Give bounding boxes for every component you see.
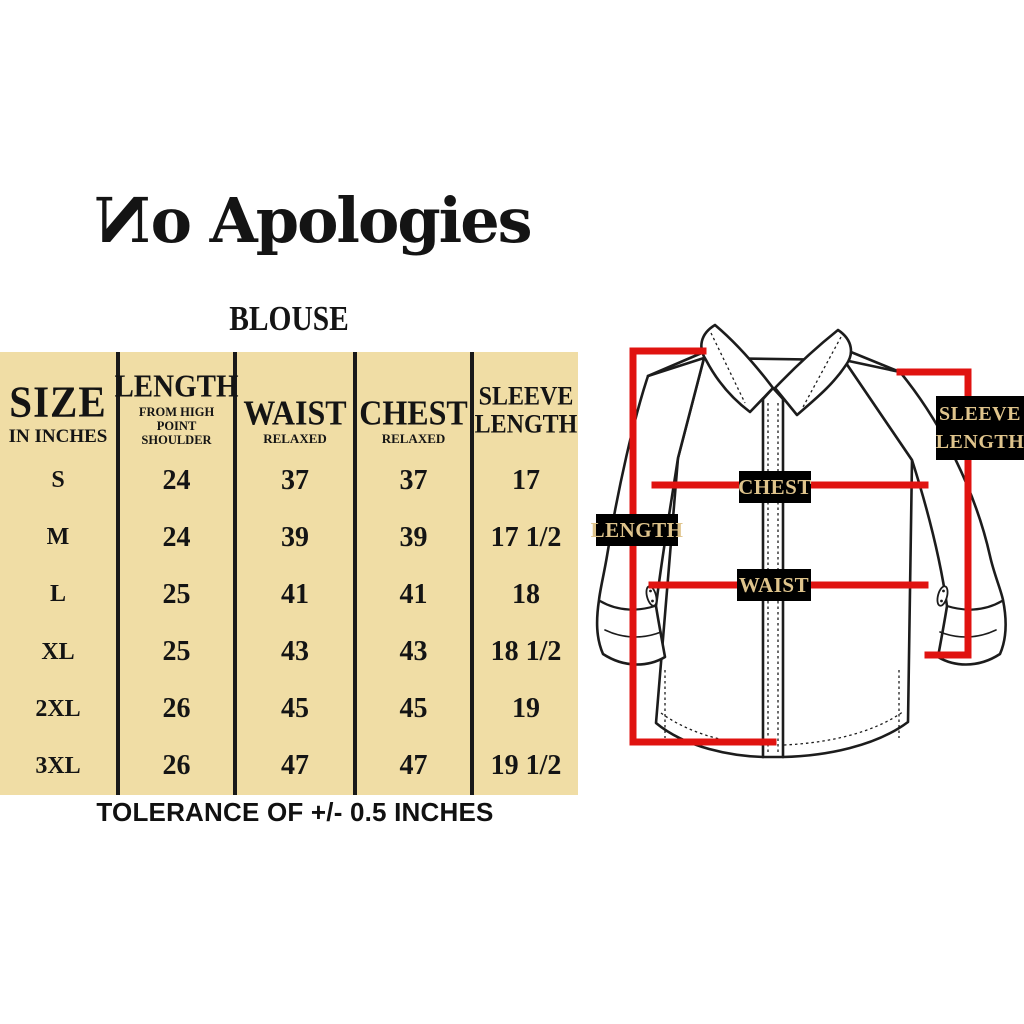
table-row-l-chest: 41 [353, 566, 470, 623]
table-row-s-chest: 37 [353, 452, 470, 509]
brand-logo-first-letter: N [96, 184, 151, 257]
column-title: LENGTH [114, 372, 238, 403]
tolerance-note: TOLERANCE OF +/- 0.5 INCHES [0, 797, 590, 828]
column-header-size: SIZE IN INCHES [0, 352, 116, 452]
column-title: SLEEVE LENGTH [475, 383, 578, 440]
table-row-s-length: 24 [116, 452, 233, 509]
table-row-l-length: 25 [116, 566, 233, 623]
column-header-sleeve-length: SLEEVE LENGTH [470, 352, 578, 452]
size-chart-page: No Apologies BLOUSE SIZE IN INCHES LENGT… [0, 0, 1024, 1024]
column-subtitle: RELAXED [263, 432, 327, 447]
brand-logo: No Apologies [96, 184, 531, 257]
table-row-m-sleeve: 17 1/2 [470, 509, 578, 566]
table-row-xl-sleeve: 18 1/2 [470, 624, 578, 681]
table-row-xl-waist: 43 [233, 624, 353, 681]
table-row-s-waist: 37 [233, 452, 353, 509]
waist-label: WAIST [737, 569, 811, 601]
column-subtitle: IN INCHES [9, 426, 108, 447]
table-row-l-size: L [0, 566, 116, 623]
length-label: LENGTH [596, 514, 678, 546]
table-row-s-sleeve: 17 [470, 452, 578, 509]
table-row-3xl-waist: 47 [233, 738, 353, 795]
table-row-xl-size: XL [0, 624, 116, 681]
sleeve-length-label: SLEEVE LENGTH [936, 396, 1024, 460]
table-row-m-size: M [0, 509, 116, 566]
column-header-waist: WAIST RELAXED [233, 352, 353, 452]
column-header-length: LENGTH FROM HIGH POINT SHOULDER [116, 352, 233, 452]
table-row-m-chest: 39 [353, 509, 470, 566]
table-row-2xl-chest: 45 [353, 681, 470, 738]
chest-label: CHEST [739, 471, 811, 503]
table-row-3xl-length: 26 [116, 738, 233, 795]
column-header-chest: CHEST RELAXED [353, 352, 470, 452]
table-row-m-length: 24 [116, 509, 233, 566]
table-row-l-waist: 41 [233, 566, 353, 623]
column-subtitle: FROM HIGH POINT SHOULDER [123, 405, 230, 447]
table-row-3xl-size: 3XL [0, 738, 116, 795]
table-row-s-size: S [0, 452, 116, 509]
table-row-2xl-waist: 45 [233, 681, 353, 738]
column-title: CHEST [359, 396, 467, 431]
column-subtitle: RELAXED [382, 432, 446, 447]
table-row-l-sleeve: 18 [470, 566, 578, 623]
table-row-2xl-sleeve: 19 [470, 681, 578, 738]
column-title: SIZE [9, 379, 106, 423]
table-row-m-waist: 39 [233, 509, 353, 566]
product-title: BLOUSE [14, 299, 563, 339]
blouse-measurement-diagram: CHEST WAIST LENGTH SLEEVE LENGTH [594, 308, 1024, 778]
size-chart-table: SIZE IN INCHES LENGTH FROM HIGH POINT SH… [0, 352, 578, 795]
brand-logo-rest: o Apologies [151, 184, 531, 257]
table-row-xl-length: 25 [116, 624, 233, 681]
column-title: WAIST [243, 396, 346, 431]
table-row-3xl-chest: 47 [353, 738, 470, 795]
table-row-xl-chest: 43 [353, 624, 470, 681]
table-row-2xl-length: 26 [116, 681, 233, 738]
table-row-3xl-sleeve: 19 1/2 [470, 738, 578, 795]
table-row-2xl-size: 2XL [0, 681, 116, 738]
